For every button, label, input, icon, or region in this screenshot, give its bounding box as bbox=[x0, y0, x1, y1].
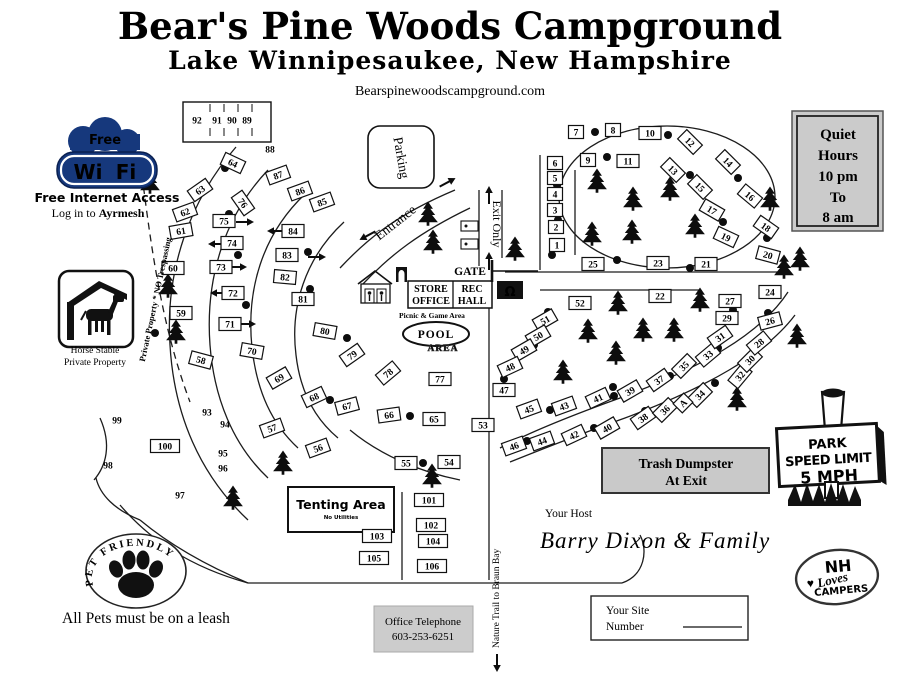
campsite-25: 25 bbox=[582, 258, 604, 271]
direction-arrow-icon bbox=[236, 218, 254, 226]
campsite-number: 59 bbox=[176, 309, 186, 319]
campsite-17: 17 bbox=[699, 199, 725, 221]
stable-label-line2: Private Property bbox=[64, 358, 126, 368]
campsite-4: 4 bbox=[548, 188, 563, 201]
campsite-number: 102 bbox=[424, 521, 439, 531]
campsite-number: 90 bbox=[227, 116, 237, 126]
campsite-100: 100 bbox=[151, 440, 180, 453]
speed-limit-sign: PARK SPEED LIMIT 5 MPH bbox=[776, 389, 886, 507]
campsite-2: 2 bbox=[549, 221, 564, 234]
campsite-number: 2 bbox=[554, 223, 559, 233]
private-property-boundary-label: Private Property * NO Trespassing bbox=[137, 236, 173, 363]
campsite-13: 13 bbox=[661, 158, 686, 183]
campsite-89: 89 bbox=[242, 116, 252, 126]
campsite-number: 8 bbox=[611, 126, 616, 136]
campsite-86: 86 bbox=[287, 181, 312, 201]
campsite-40: 40 bbox=[594, 417, 620, 439]
campsite-18: 18 bbox=[753, 215, 778, 238]
campground-map-page: Bear's Pine Woods Campground Lake Winnip… bbox=[0, 0, 900, 695]
campsite-number: 74 bbox=[227, 239, 237, 249]
site-marker-dot bbox=[548, 251, 556, 259]
campsite-number: 89 bbox=[242, 116, 252, 126]
nature-trail-label: Nature Trail to Braun Bay bbox=[492, 549, 502, 648]
campsite-5: 5 bbox=[548, 172, 563, 185]
horseshoe-pit-icon: Ω bbox=[497, 281, 523, 300]
pool-area-outline-label: AREA bbox=[428, 344, 459, 354]
pine-tree-icon bbox=[622, 220, 642, 244]
campsite-number: 91 bbox=[212, 116, 222, 126]
campsite-84: 84 bbox=[282, 225, 304, 238]
campsite-number: 66 bbox=[384, 411, 395, 422]
quiet-hours-line: Quiet bbox=[820, 127, 856, 143]
exit-only-label: Exit Only bbox=[490, 201, 504, 248]
rec-hall-label-line2: HALL bbox=[458, 296, 487, 307]
campsite-number: 52 bbox=[575, 299, 585, 309]
wifi-login-line: Log in to Ayrmesh bbox=[52, 206, 145, 220]
campsite-number: 4 bbox=[553, 190, 558, 200]
campsite-number: 27 bbox=[725, 297, 735, 307]
campsite-number: 73 bbox=[216, 263, 226, 273]
rec-hall-label-line1: REC bbox=[461, 284, 482, 295]
host-name: Barry Dixon & Family bbox=[540, 528, 770, 553]
campsite-number: 23 bbox=[653, 259, 663, 269]
campsite-19: 19 bbox=[713, 226, 738, 247]
campsite-24: 24 bbox=[759, 286, 781, 299]
arrows-layer bbox=[208, 175, 501, 672]
campsite-number: 72 bbox=[228, 289, 238, 299]
campsite-82: 82 bbox=[273, 270, 296, 285]
campsite-1: 1 bbox=[550, 239, 565, 252]
entrance-label: Entrance bbox=[372, 202, 419, 243]
stable-label-line1: Horse Stable bbox=[71, 346, 120, 356]
site-marker-dot bbox=[242, 301, 250, 309]
trash-notice-line1: Trash Dumpster bbox=[639, 456, 734, 471]
campsite-number: 24 bbox=[765, 288, 775, 298]
omega-glyph: Ω bbox=[504, 285, 515, 300]
office-phone-line1: Office Telephone bbox=[385, 616, 461, 628]
speed-sign-line1: PARK bbox=[808, 436, 848, 453]
campsite-80: 80 bbox=[313, 323, 337, 340]
site-marker-dot bbox=[603, 153, 611, 161]
quiet-hours-line: 10 pm bbox=[818, 169, 858, 185]
campsite-number: 55 bbox=[401, 459, 411, 469]
pine-tree-icon bbox=[690, 288, 710, 312]
campsite-76: 76 bbox=[231, 190, 254, 215]
campsite-number: 96 bbox=[218, 464, 228, 474]
pine-tree-icon bbox=[505, 237, 525, 261]
office-phone-number: 603-253-6251 bbox=[392, 631, 454, 643]
campsite-48: 48 bbox=[497, 356, 522, 377]
trash-dumpster-notice: Trash Dumpster At Exit bbox=[602, 448, 769, 493]
campsite-52: 52 bbox=[569, 297, 591, 310]
site-marker-dot bbox=[686, 264, 694, 272]
campsite-70: 70 bbox=[240, 343, 264, 360]
campsite-number: 84 bbox=[288, 227, 298, 237]
campsite-98: 98 bbox=[103, 461, 113, 471]
pine-tree-icon bbox=[623, 187, 643, 211]
pine-tree-icon bbox=[760, 187, 780, 211]
pine-tree-icon bbox=[606, 341, 626, 365]
pine-tree-icon bbox=[587, 169, 607, 193]
campsite-number: 100 bbox=[158, 442, 173, 452]
campsite-66: 66 bbox=[377, 407, 401, 423]
campsite-16: 16 bbox=[737, 184, 762, 208]
campsite-99: 99 bbox=[112, 416, 122, 426]
tenting-area-label: Tenting Area bbox=[296, 497, 385, 512]
nh-loves-campers-badge: NH ♥ Loves CAMPERS bbox=[794, 547, 880, 608]
quiet-hours-line: To bbox=[830, 190, 846, 206]
quiet-hours-line: 8 am bbox=[822, 210, 854, 226]
campsite-20: 20 bbox=[756, 246, 781, 264]
campsite-number: 95 bbox=[218, 449, 228, 459]
campsite-number: 99 bbox=[112, 416, 122, 426]
site-marker-dot bbox=[234, 251, 242, 259]
campsite-88: 88 bbox=[265, 145, 275, 155]
campsite-number: 29 bbox=[722, 314, 732, 324]
campsite-69: 69 bbox=[266, 367, 292, 389]
pine-tree-icon bbox=[685, 214, 705, 238]
pine-tree-icon bbox=[273, 451, 293, 475]
campsite-41: 41 bbox=[585, 387, 610, 408]
tenting-area-sublabel: No Utilities bbox=[324, 515, 359, 521]
campsite-46: 46 bbox=[501, 436, 526, 456]
campsite-number: 83 bbox=[282, 251, 292, 261]
campsite-12: 12 bbox=[678, 130, 703, 155]
campsite-26: 26 bbox=[758, 312, 783, 330]
campsite-number: 80 bbox=[319, 327, 330, 339]
site-marker-dot bbox=[419, 459, 427, 467]
wifi-wi-text: Wi bbox=[74, 160, 103, 184]
pine-tree-icon bbox=[553, 360, 573, 384]
campsite-9: 9 bbox=[581, 154, 596, 167]
campsite-38: 38 bbox=[630, 406, 655, 429]
campsite-10: 10 bbox=[639, 127, 661, 140]
campsite-number: 92 bbox=[192, 116, 202, 126]
campsite-77: 77 bbox=[429, 373, 451, 386]
campsite-number: 70 bbox=[246, 347, 257, 359]
trash-notice-line2: At Exit bbox=[665, 473, 707, 488]
site-marker-dot bbox=[306, 285, 314, 293]
campsite-71: 71 bbox=[219, 318, 241, 331]
campsite-number: 47 bbox=[499, 386, 509, 396]
campsite-number: 11 bbox=[624, 157, 633, 167]
wifi-fi-text: Fi bbox=[116, 160, 137, 184]
campsite-44: 44 bbox=[529, 431, 554, 451]
campsite-105: 105 bbox=[360, 552, 389, 565]
site-marker-dot bbox=[613, 256, 621, 264]
campsite-85: 85 bbox=[309, 192, 334, 212]
campsite-number: 71 bbox=[225, 320, 235, 330]
horse-stable-badge: Horse Stable Private Property bbox=[59, 271, 133, 368]
campsite-number: 25 bbox=[588, 260, 598, 270]
campsite-57: 57 bbox=[259, 418, 284, 438]
campsite-number: 81 bbox=[298, 295, 308, 305]
campsite-3: 3 bbox=[548, 204, 563, 217]
campsite-11: 11 bbox=[617, 155, 639, 168]
campsite-43: 43 bbox=[551, 396, 576, 416]
campsite-95: 95 bbox=[218, 449, 228, 459]
campsite-number: 97 bbox=[175, 491, 185, 501]
pine-tree-icon bbox=[727, 387, 747, 411]
campsite-53: 53 bbox=[472, 419, 494, 432]
direction-arrow-icon bbox=[438, 175, 457, 190]
site-marker-dot bbox=[343, 334, 351, 342]
site-marker-dot bbox=[664, 131, 672, 139]
site-card-line2: Number bbox=[606, 621, 644, 633]
campsite-96: 96 bbox=[218, 464, 228, 474]
campsite-number: 5 bbox=[553, 174, 558, 184]
campsite-39: 39 bbox=[617, 380, 643, 402]
wifi-tagline: Free Internet Access bbox=[35, 190, 180, 205]
campsite-number: 60 bbox=[168, 264, 178, 274]
campsite-61: 61 bbox=[169, 223, 193, 240]
campsite-14: 14 bbox=[716, 150, 741, 175]
site-marker-dot bbox=[326, 396, 334, 404]
campsite-number: 6 bbox=[553, 159, 558, 169]
campsite-97: 97 bbox=[175, 491, 185, 501]
site-marker-dot bbox=[609, 383, 617, 391]
doorway-icon bbox=[396, 267, 407, 282]
campsite-8: 8 bbox=[606, 124, 621, 137]
campsite-number: 82 bbox=[280, 273, 291, 284]
campsite-45: 45 bbox=[516, 399, 541, 419]
campsite-83: 83 bbox=[276, 249, 298, 262]
pine-tree-icon bbox=[582, 222, 602, 246]
host-block: Your Host Barry Dixon & Family bbox=[540, 508, 770, 553]
campsite-67: 67 bbox=[335, 397, 360, 415]
campsite-number: 53 bbox=[478, 421, 488, 431]
pine-tree-icon bbox=[578, 319, 598, 343]
campsite-number: 94 bbox=[220, 420, 230, 430]
site-marker-dot bbox=[591, 128, 599, 136]
campsite-27: 27 bbox=[719, 295, 741, 308]
campsite-6: 6 bbox=[548, 157, 563, 170]
quiet-hours-line: Hours bbox=[818, 148, 858, 164]
pine-tree-icon bbox=[418, 202, 438, 226]
campsite-number: 61 bbox=[176, 227, 187, 239]
rv-icons bbox=[461, 221, 478, 249]
campsite-74: 74 bbox=[221, 237, 243, 250]
campsite-63: 63 bbox=[187, 178, 212, 201]
campsite-91: 91 bbox=[212, 116, 222, 126]
campsite-number: 3 bbox=[553, 206, 558, 216]
campsite-102: 102 bbox=[417, 519, 446, 532]
campsite-72: 72 bbox=[222, 287, 244, 300]
campsite-7: 7 bbox=[569, 126, 584, 139]
campsite-number: 104 bbox=[426, 537, 441, 547]
campsite-number: 22 bbox=[655, 292, 665, 302]
campsite-number: 105 bbox=[367, 554, 382, 564]
campsite-56: 56 bbox=[305, 438, 330, 458]
campsite-93: 93 bbox=[202, 408, 212, 418]
campsite-106: 106 bbox=[418, 560, 447, 573]
campsite-73: 73 bbox=[210, 261, 232, 274]
campsite-37: 37 bbox=[646, 368, 671, 391]
campsite-75: 75 bbox=[213, 215, 235, 228]
campsite-92: 92 bbox=[192, 116, 202, 126]
campsite-79: 79 bbox=[339, 343, 364, 366]
campsite-number: 93 bbox=[202, 408, 212, 418]
campsite-42: 42 bbox=[561, 424, 586, 445]
campsite-number: 75 bbox=[219, 217, 229, 227]
campsite-number: 77 bbox=[435, 375, 445, 385]
wifi-login-network-name: Ayrmesh bbox=[99, 206, 145, 220]
site-marker-dot bbox=[719, 218, 727, 226]
campsite-number: 9 bbox=[586, 156, 591, 166]
campsite-number: 65 bbox=[429, 415, 439, 425]
restroom-hut-icon bbox=[358, 271, 392, 303]
picnic-area-label: Picnic & Game Area bbox=[399, 311, 465, 320]
campsite-29: 29 bbox=[716, 312, 738, 325]
campsite-101: 101 bbox=[415, 494, 444, 507]
store-label-line2: OFFICE bbox=[412, 296, 450, 307]
site-marker-dot bbox=[734, 174, 742, 182]
campsite-number: 106 bbox=[425, 562, 440, 572]
campsite-55: 55 bbox=[395, 457, 417, 470]
campsite-number: 88 bbox=[265, 145, 275, 155]
campsite-54: 54 bbox=[438, 456, 460, 469]
gate-label: GATE bbox=[454, 266, 486, 278]
site-marker-dot bbox=[406, 412, 414, 420]
pine-tree-icon bbox=[787, 324, 807, 348]
campsite-21: 21 bbox=[695, 258, 717, 271]
pine-tree-icon bbox=[423, 230, 443, 254]
pine-tree-icon bbox=[633, 318, 653, 342]
site-marker-dot bbox=[711, 379, 719, 387]
pet-friendly-badge: PET FRIENDLY bbox=[84, 534, 186, 608]
leash-rule-text: All Pets must be on a leash bbox=[62, 610, 230, 627]
campsite-number: 21 bbox=[701, 260, 711, 270]
campsite-36: 36 bbox=[653, 398, 678, 423]
site-card-line1: Your Site bbox=[606, 605, 649, 617]
pine-tree-icon bbox=[608, 291, 628, 315]
campsite-23: 23 bbox=[647, 257, 669, 270]
pine-tree-icon bbox=[790, 247, 810, 271]
pool-label: POOL bbox=[418, 329, 455, 341]
campground-map: Ω 92919089888786856463626160595876757473… bbox=[0, 0, 900, 695]
campsite-number: 1 bbox=[555, 241, 560, 251]
campsite-65: 65 bbox=[423, 413, 445, 426]
direction-arrow-icon bbox=[493, 654, 501, 672]
wifi-login-prefix: Log in to bbox=[52, 206, 99, 220]
campsite-number: 103 bbox=[370, 532, 385, 542]
campsite-number: 98 bbox=[103, 461, 113, 471]
campsite-number: 101 bbox=[422, 496, 437, 506]
campsite-58: 58 bbox=[189, 351, 214, 369]
store-label-line1: STORE bbox=[414, 284, 448, 295]
campsite-78: 78 bbox=[375, 361, 400, 385]
wifi-lozenge bbox=[57, 152, 157, 188]
campsite-62: 62 bbox=[172, 202, 197, 222]
site-number-card: Your Site Number bbox=[591, 596, 748, 640]
host-label: Your Host bbox=[545, 508, 593, 520]
campsite-90: 90 bbox=[227, 116, 237, 126]
campsite-68: 68 bbox=[301, 386, 326, 407]
pine-tree-icon bbox=[664, 318, 684, 342]
campsite-number: 54 bbox=[444, 458, 454, 468]
wifi-cloud-text: Free bbox=[89, 133, 121, 148]
campsite-103: 103 bbox=[363, 530, 392, 543]
office-telephone-notice: Office Telephone 603-253-6251 bbox=[374, 606, 473, 652]
campsite-number: 10 bbox=[645, 129, 655, 139]
quiet-hours-sign: Quiet Hours 10 pm To 8 am bbox=[792, 111, 883, 231]
campsite-94: 94 bbox=[220, 420, 230, 430]
campsite-104: 104 bbox=[419, 535, 448, 548]
campsite-number: 7 bbox=[574, 128, 579, 138]
campsite-47: 47 bbox=[493, 384, 515, 397]
campsite-87: 87 bbox=[265, 165, 290, 185]
campsite-81: 81 bbox=[292, 293, 314, 306]
free-wifi-badge: Free Wi Fi Free Internet Access Log in t… bbox=[35, 117, 180, 220]
site-marker-dot bbox=[610, 392, 618, 400]
site-marker-dot bbox=[304, 248, 312, 256]
campsite-59: 59 bbox=[170, 307, 192, 320]
campsite-22: 22 bbox=[649, 290, 671, 303]
